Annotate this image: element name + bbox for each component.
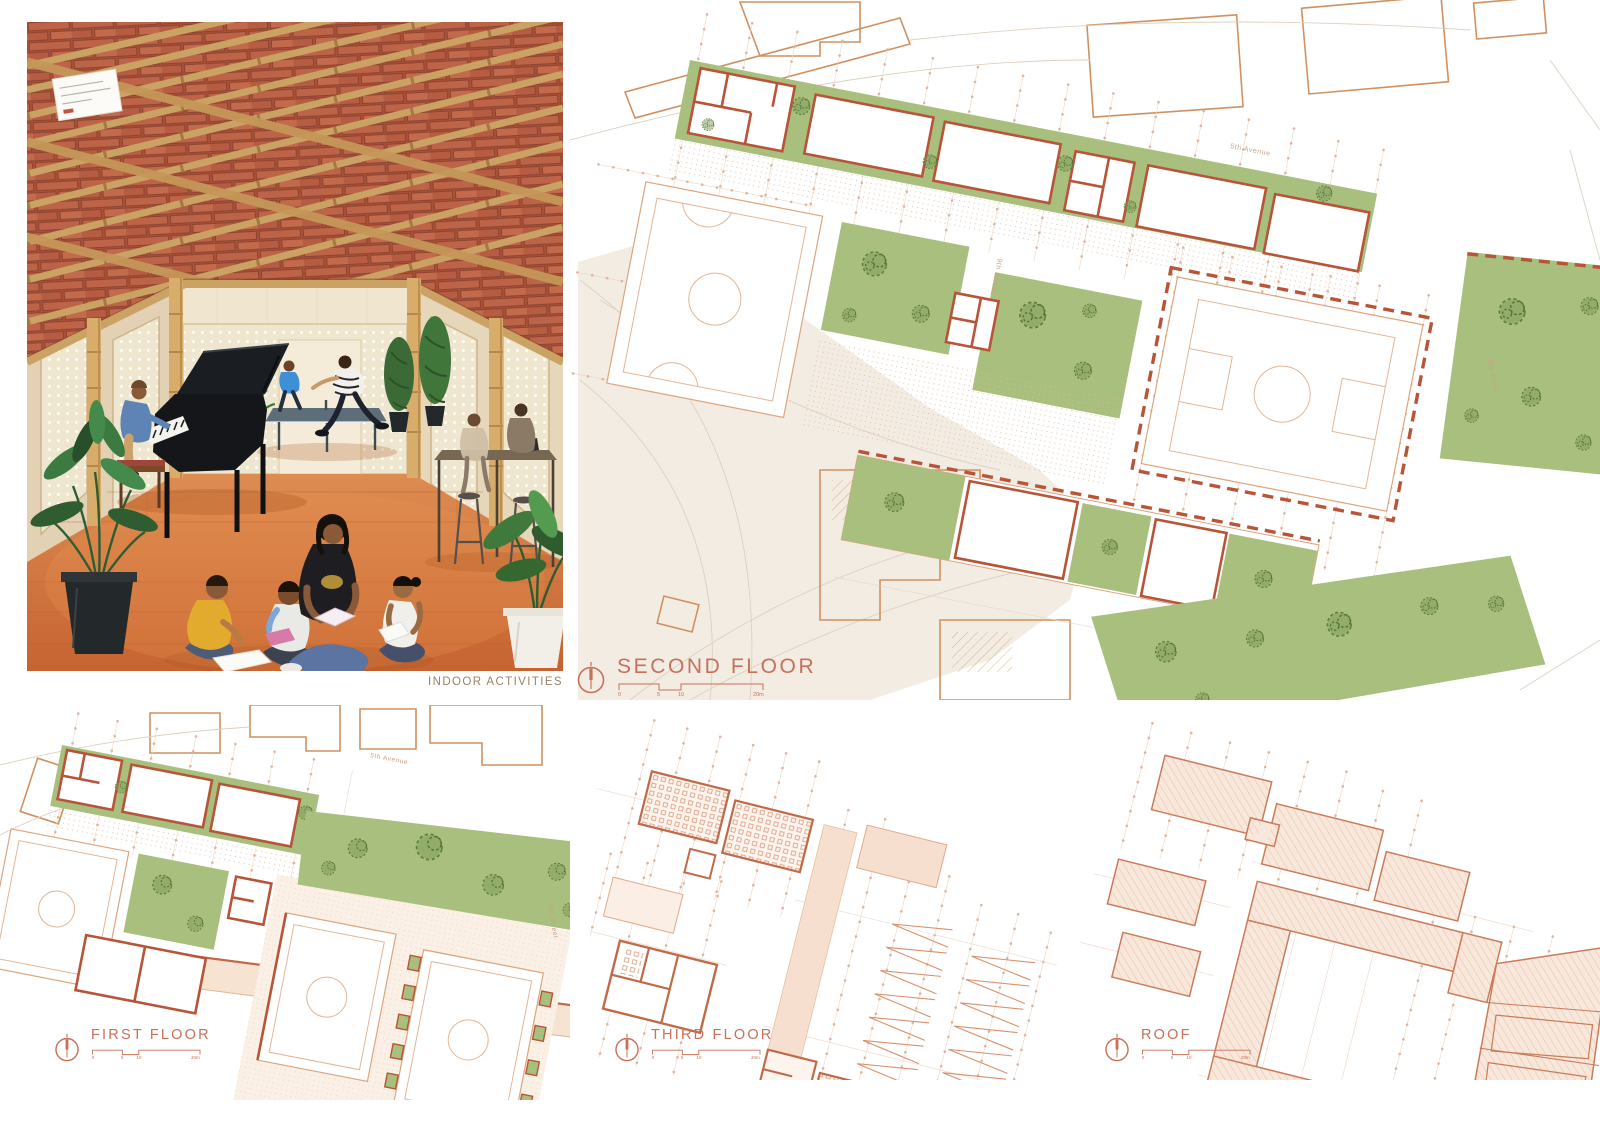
render-caption: INDOOR ACTIVITIES	[27, 676, 563, 688]
svg-text:10: 10	[137, 1055, 142, 1060]
roof-level-plan	[590, 711, 1080, 1080]
svg-text:0: 0	[618, 692, 621, 697]
gym-court	[1132, 268, 1432, 521]
stair-core	[946, 293, 999, 350]
plan-title: FIRST FLOOR	[91, 1028, 211, 1043]
svg-text:20m: 20m	[1241, 1055, 1250, 1060]
classroom	[639, 771, 730, 843]
plan-title: SECOND FLOOR	[617, 656, 816, 677]
scale-bar: 0 5 10 20m	[1141, 1046, 1253, 1061]
first-floor-label: FIRST FLOOR 0 5 10 20m	[52, 1028, 211, 1064]
north-arrow-icon	[1102, 1028, 1132, 1064]
stair-core	[603, 941, 717, 1033]
svg-text:0: 0	[92, 1055, 95, 1060]
second-floor-plan: 5th Avenue 9th Street 8th Street	[570, 0, 1600, 700]
svg-text:5: 5	[657, 692, 660, 697]
plan-title: THIRD FLOOR	[651, 1028, 773, 1043]
svg-text:10: 10	[1187, 1055, 1192, 1060]
multipurpose-rooms	[75, 935, 205, 1013]
north-arrow-icon	[612, 1028, 642, 1064]
svg-text:20m: 20m	[753, 692, 764, 697]
svg-text:5: 5	[121, 1055, 124, 1060]
svg-text:20m: 20m	[751, 1055, 760, 1060]
street-label: 5th Avenue	[1230, 143, 1271, 158]
svg-text:10: 10	[678, 692, 684, 697]
third-floor-label: THIRD FLOOR 0 5 10 20m	[612, 1028, 773, 1064]
classroom	[1141, 519, 1227, 609]
scale-bar: 0 5 10 20m	[651, 1046, 763, 1061]
svg-text:0: 0	[1142, 1055, 1145, 1060]
north-arrow-icon	[52, 1028, 82, 1064]
svg-text:10: 10	[697, 1055, 702, 1060]
indoor-activities-render	[27, 22, 563, 671]
svg-text:5: 5	[1171, 1055, 1174, 1060]
third-floor-plan	[590, 705, 1080, 1080]
stair-core	[228, 877, 271, 925]
scale-bar: 0 5 10 20m	[617, 680, 767, 697]
presentation-board: INDOOR ACTIVITIES	[0, 0, 1600, 1132]
north-arrow-icon	[574, 656, 608, 696]
svg-text:0: 0	[652, 1055, 655, 1060]
roof-surfaces	[1080, 718, 1600, 1080]
roof-label: ROOF 0 5 10 20m	[1102, 1028, 1253, 1064]
truss-fan	[849, 915, 952, 1080]
stair-core	[1064, 151, 1134, 221]
roof-plan	[1080, 705, 1600, 1080]
classroom	[722, 800, 813, 872]
plan-title: ROOF	[1141, 1028, 1253, 1043]
svg-text:5: 5	[681, 1055, 684, 1060]
svg-text:20m: 20m	[191, 1055, 200, 1060]
scale-bar: 0 5 10 20m	[91, 1046, 203, 1061]
second-floor-label: SECOND FLOOR 0 5 10 20m	[574, 656, 816, 697]
stair-core	[58, 750, 123, 810]
west-court	[607, 182, 823, 418]
street-label: 5th Avenue	[370, 752, 409, 766]
